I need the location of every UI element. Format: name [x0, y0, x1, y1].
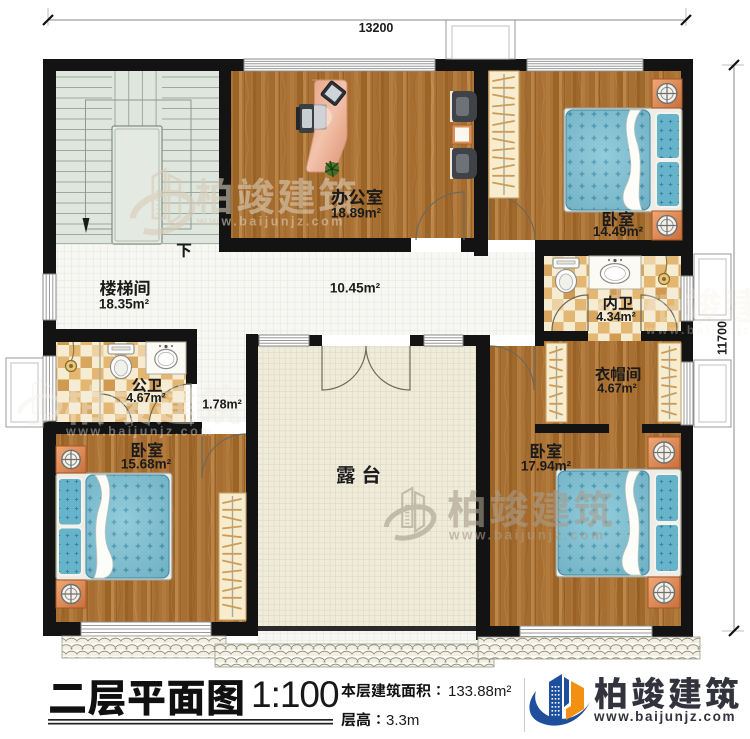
- svg-text:18.89m²: 18.89m²: [331, 206, 382, 221]
- svg-text:14.49m²: 14.49m²: [593, 224, 644, 239]
- svg-text:1.78m²: 1.78m²: [202, 397, 242, 411]
- svg-text:www.baijunjz.com: www.baijunjz.com: [448, 528, 606, 543]
- svg-text:11700: 11700: [715, 321, 729, 355]
- svg-text:4.67m²: 4.67m²: [597, 381, 637, 395]
- svg-text:www.baijunjz.com: www.baijunjz.com: [65, 425, 214, 439]
- svg-text:18.35m²: 18.35m²: [99, 297, 150, 312]
- svg-text:4.34m²: 4.34m²: [596, 310, 636, 324]
- svg-text:15.68m²: 15.68m²: [121, 457, 172, 472]
- svg-text:1:100: 1:100: [251, 674, 339, 715]
- svg-text:13200: 13200: [359, 21, 394, 35]
- svg-text:17.94m²: 17.94m²: [521, 459, 572, 474]
- svg-text:10.45m²: 10.45m²: [330, 281, 381, 296]
- svg-text:3.3m: 3.3m: [386, 712, 419, 729]
- svg-text:www.baijunjz.com: www.baijunjz.com: [593, 709, 736, 724]
- svg-text:4.67m²: 4.67m²: [126, 391, 166, 405]
- svg-text:133.88m²: 133.88m²: [448, 683, 511, 700]
- svg-text:www.baijunjz.com: www.baijunjz.com: [196, 215, 345, 229]
